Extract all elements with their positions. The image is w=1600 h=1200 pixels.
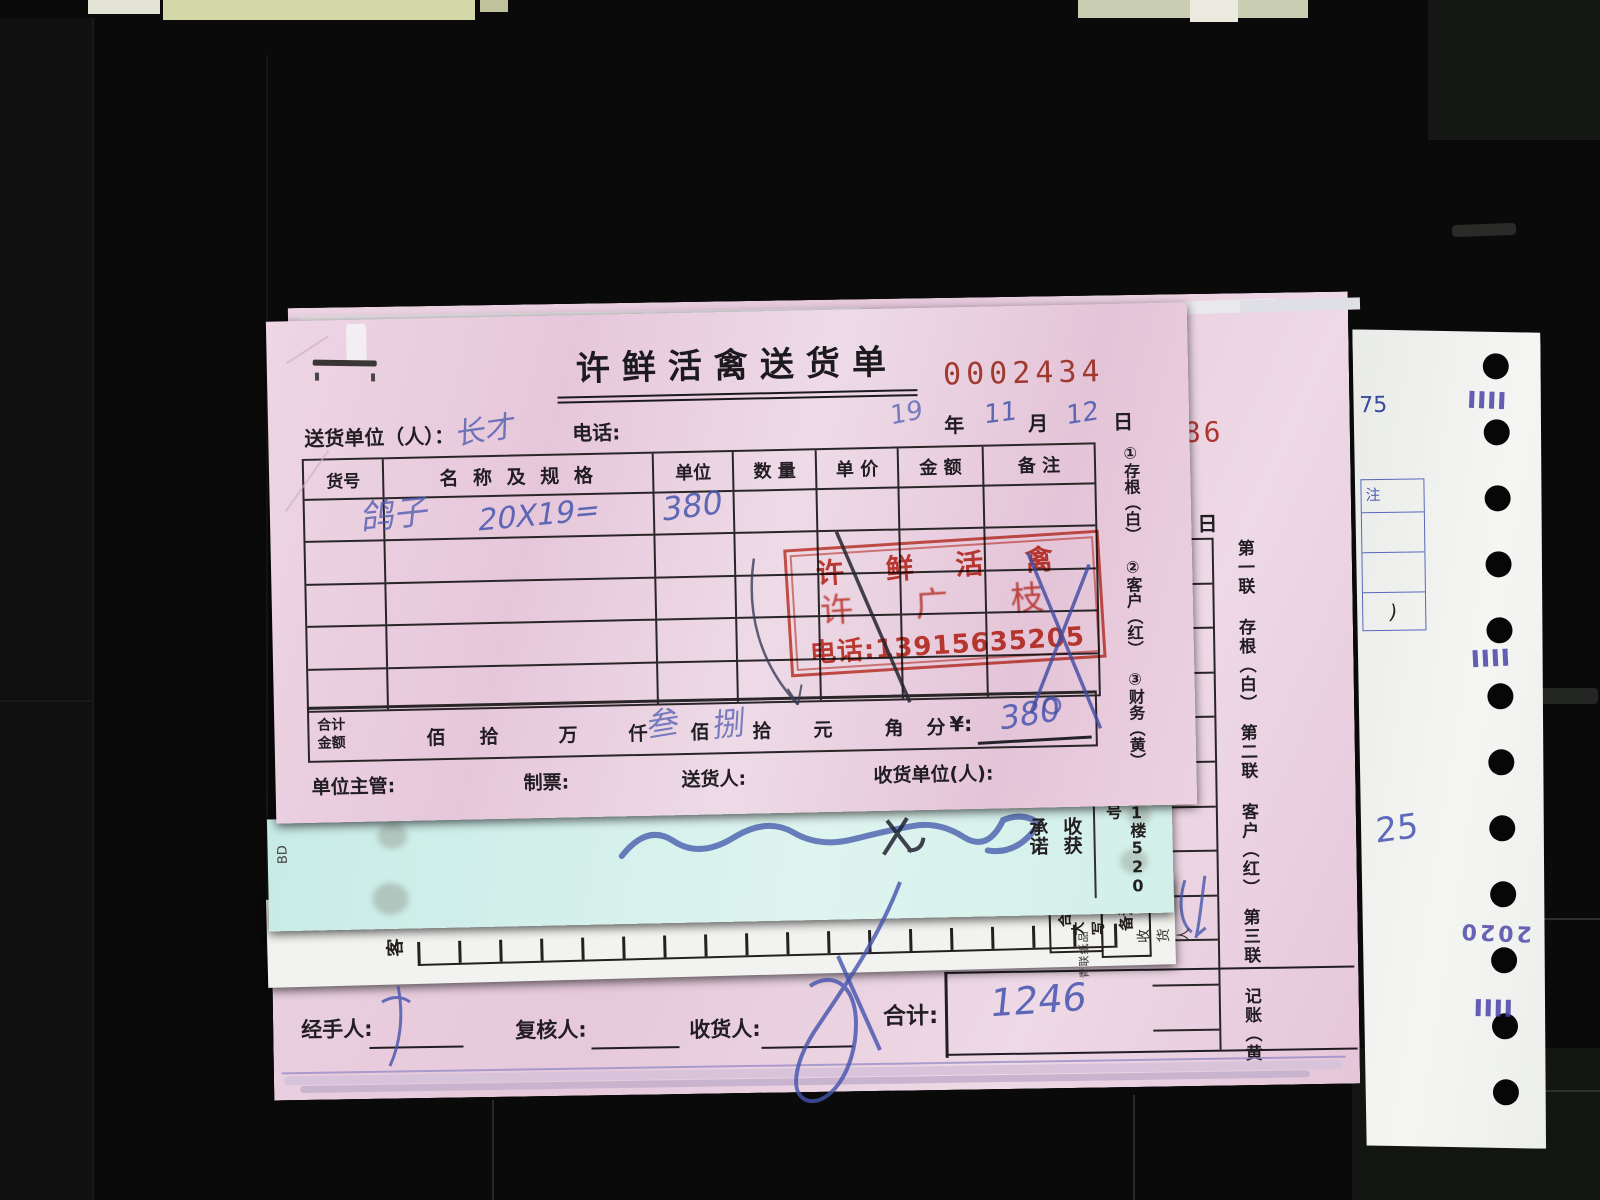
ink-bar (1482, 650, 1488, 667)
ink-bar (1486, 999, 1491, 1016)
background-smudge (1452, 223, 1516, 237)
day-label: 日 (1197, 508, 1217, 537)
ink-bar (1496, 999, 1501, 1016)
tick-mark (663, 935, 666, 957)
tractor-hole (1485, 551, 1511, 577)
handwritten-number-25: 25 (1375, 806, 1419, 852)
tick-mark (868, 930, 871, 952)
blue-form-grid: 注 ) (1360, 478, 1426, 631)
ink-bar (1469, 391, 1475, 408)
handler-label: 经手人: (301, 1013, 373, 1044)
tick-mark (950, 928, 953, 950)
tick-mark (991, 927, 994, 949)
tractor-hole (1493, 1079, 1519, 1105)
address-fragment: 1楼520号 (1100, 803, 1150, 908)
total-label: 合计: (883, 996, 939, 1031)
tractor-hole (1484, 419, 1510, 445)
tick-mark (745, 933, 748, 955)
total-box-bottomline (946, 1047, 1358, 1055)
reviewer-label: 复核人: (515, 1014, 587, 1045)
tick-mark (540, 939, 543, 961)
promise-col2: 收获 (1058, 816, 1087, 889)
ink-bar (1499, 392, 1505, 409)
photo-of-delivery-receipts: 75 注 ) 25 2020 486 日 注 第一联 存根（白） 第二联 客户（… (0, 0, 1600, 1200)
receiver-rotated-label: 收货人 (1133, 918, 1194, 944)
corner-mark: BD (275, 845, 290, 864)
background-panel-left (0, 18, 92, 1200)
page-number: 75 (1359, 393, 1387, 418)
tick-mark (417, 942, 420, 964)
reviewer-line (591, 1046, 679, 1049)
ink-bar-cluster (1472, 649, 1508, 668)
ink-bar (1476, 999, 1481, 1016)
handler-line (369, 1046, 463, 1049)
promise-col1: 承诺 (1024, 817, 1053, 890)
receipt-pen-strokes (266, 302, 1197, 823)
bracket-mark: ) (1387, 599, 1399, 624)
top-strip (163, 0, 475, 20)
tick-mark (704, 934, 707, 956)
background-panel-right-top (1428, 0, 1600, 140)
ink-bar-cluster (1469, 391, 1505, 409)
stamped-digits: 2020 (1458, 918, 1532, 946)
ink-bar (1502, 649, 1508, 666)
top-strip (88, 0, 160, 14)
grid-line (1362, 511, 1424, 513)
tick-mark (622, 937, 625, 959)
tick-mark (827, 931, 830, 953)
tractor-hole (1491, 947, 1517, 973)
tick-mark (458, 941, 461, 963)
top-strip (480, 0, 508, 12)
grid-line (1363, 591, 1425, 593)
grid-line (1362, 551, 1424, 553)
tractor-hole (1490, 881, 1516, 907)
tractor-hole (1484, 485, 1510, 511)
ink-bar (1479, 391, 1485, 408)
form-divider-line (1093, 802, 1097, 898)
table-row (1153, 984, 1220, 1030)
tractor-holes (1483, 353, 1519, 1105)
background-smudge (1538, 688, 1598, 704)
tractor-hole (1487, 683, 1513, 709)
tractor-hole (1489, 815, 1515, 841)
total-box-vline (944, 972, 948, 1058)
tractor-hole (1488, 749, 1514, 775)
tick-mark (581, 938, 584, 960)
note-cell-label: 注 (1365, 484, 1380, 505)
tractor-hole (1486, 617, 1512, 643)
tick-mark (786, 932, 789, 954)
top-strip (1190, 0, 1238, 22)
ink-bar (1472, 650, 1478, 667)
tick-mark (499, 940, 502, 962)
main-receipt: 许鲜活禽送货单 0002434 送货单位（人）： 长才 电话: 19 年 11 … (266, 302, 1197, 823)
tick-mark (1032, 926, 1035, 948)
gray-smudge (377, 823, 408, 850)
receiver-line (762, 1045, 854, 1048)
scratch-line (1133, 1095, 1135, 1200)
tractor-hole (1483, 353, 1509, 379)
tractor-paper: 75 注 ) 25 2020 (1350, 327, 1551, 1152)
paper-maker-mark: 青联纸品 (1075, 930, 1092, 978)
receiver-label: 收货人: (689, 1013, 761, 1044)
gray-smudge (372, 883, 409, 916)
scratch-line (492, 1100, 494, 1200)
ink-bar (1489, 392, 1495, 409)
ink-bar (1506, 1000, 1511, 1017)
ink-bar-cluster (1476, 999, 1511, 1017)
ink-bar (1492, 649, 1498, 666)
ruled-tick-strip (417, 924, 1117, 966)
grand-total-handwritten: 1246 (988, 974, 1089, 1025)
tractor-hole (1492, 1013, 1518, 1039)
panel-seam (92, 18, 94, 1200)
copies-legend: 第一联 存根（白） 第二联 客户（红） 第三联 记账（黄） (1232, 539, 1266, 1083)
panel-seam (0, 700, 92, 702)
tick-mark (909, 929, 912, 951)
customer-label: 客 (381, 938, 407, 957)
